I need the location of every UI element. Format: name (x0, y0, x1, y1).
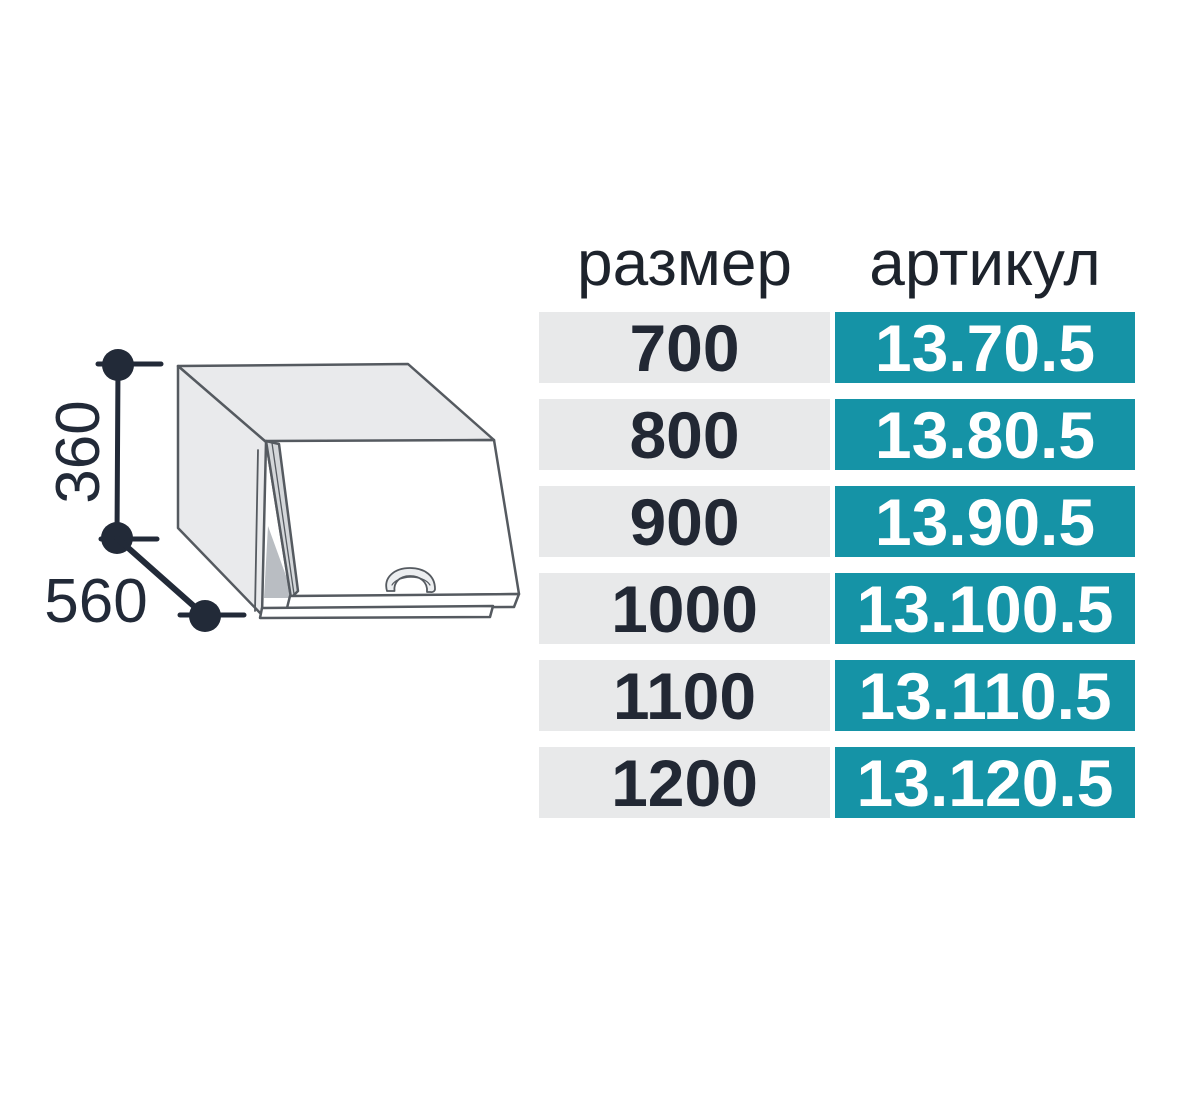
depth-dimension-label: 560 (44, 567, 147, 636)
article-cell: 13.120.5 (835, 747, 1135, 818)
article-column-header: артикул (835, 226, 1135, 300)
cabinet-bottom-plinth (260, 606, 493, 618)
table-row: 700 13.70.5 (539, 312, 1135, 383)
size-cell: 1200 (539, 747, 830, 818)
article-cell: 13.110.5 (835, 660, 1135, 731)
cabinet-drawing (178, 364, 519, 618)
size-article-table: размер артикул 700 13.70.5 800 13.80.5 9… (539, 226, 1135, 818)
table-header-row: размер артикул (539, 226, 1135, 300)
article-cell: 13.100.5 (835, 573, 1135, 644)
table-row: 1100 13.110.5 (539, 660, 1135, 731)
dimension-height: 360 (44, 349, 161, 554)
size-cell: 800 (539, 399, 830, 470)
size-cell: 900 (539, 486, 830, 557)
size-cell: 1000 (539, 573, 830, 644)
article-cell: 13.70.5 (835, 312, 1135, 383)
height-dimension-label: 360 (44, 400, 113, 503)
catalog-page: 360 560 размер артикул 700 13.70.5 800 1… (0, 0, 1200, 1107)
table-row: 1200 13.120.5 (539, 747, 1135, 818)
table-row: 1000 13.100.5 (539, 573, 1135, 644)
table-row: 800 13.80.5 (539, 399, 1135, 470)
size-cell: 1100 (539, 660, 830, 731)
size-cell: 700 (539, 312, 830, 383)
size-column-header: размер (539, 226, 830, 300)
article-cell: 13.80.5 (835, 399, 1135, 470)
article-cell: 13.90.5 (835, 486, 1135, 557)
table-row: 900 13.90.5 (539, 486, 1135, 557)
